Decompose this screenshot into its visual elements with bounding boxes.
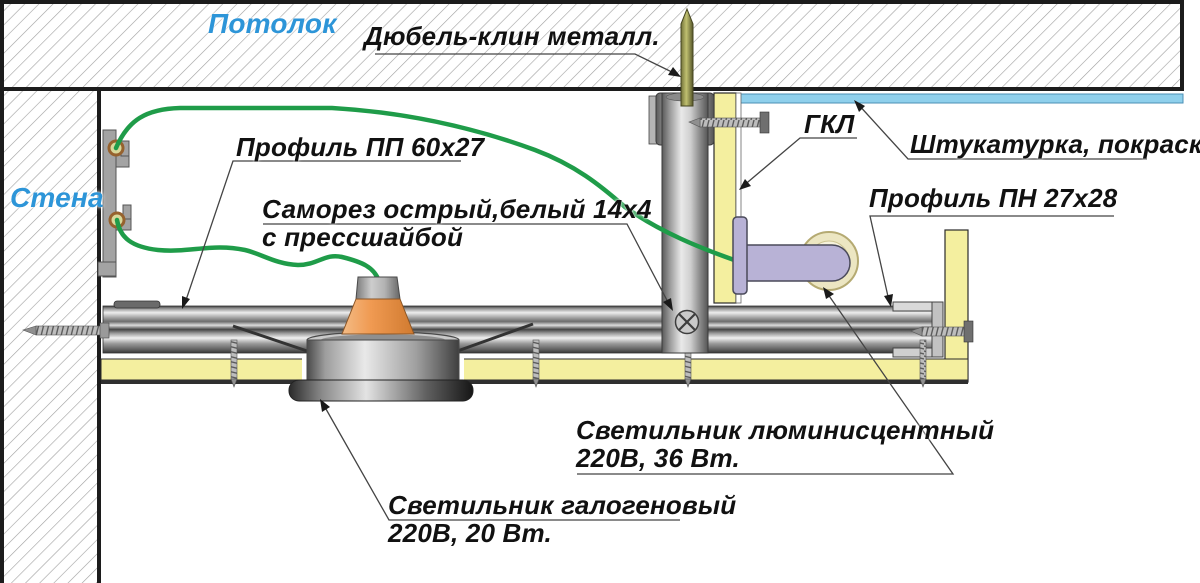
label-fluorescent-line1: Светильник люминисцентный — [576, 416, 994, 445]
press-washer-screw — [676, 311, 699, 334]
label-screw-line1: Саморез острый,белый 14х4 — [262, 195, 652, 224]
label-screw-line2: с прессшайбой — [262, 223, 463, 252]
leader-profile-pn — [870, 216, 1114, 301]
label-halogen-line2: 220В, 20 Вт. — [388, 519, 552, 548]
label-plaster: Штукатурка, покраска — [910, 130, 1200, 159]
label-ceiling: Потолок — [208, 9, 337, 38]
halogen-connector — [356, 277, 400, 299]
label-gkl: ГКЛ — [804, 110, 854, 139]
label-profile-pn: Профиль ПН 27х28 — [869, 184, 1117, 213]
halogen-trim-ring — [289, 380, 473, 401]
label-dowel-wedge: Дюбель-клин металл. — [364, 22, 660, 51]
plaster-paint-layer — [740, 94, 1183, 103]
label-halogen-line1: Светильник галогеновый — [388, 491, 736, 520]
label-wall: Стена — [10, 183, 104, 212]
leader-gkl — [742, 138, 857, 187]
halogen-bulb — [342, 299, 414, 334]
wall-slab — [0, 91, 101, 583]
ceiling-construction-diagram: Потолок Стена Дюбель-клин металл. Профил… — [0, 0, 1200, 583]
label-fluorescent-line2: 220В, 36 Вт. — [576, 444, 740, 473]
anchor-wedge — [681, 9, 693, 106]
fluorescent-lamp — [733, 217, 858, 294]
label-profile-pp: Профиль ПП 60х27 — [236, 133, 484, 162]
